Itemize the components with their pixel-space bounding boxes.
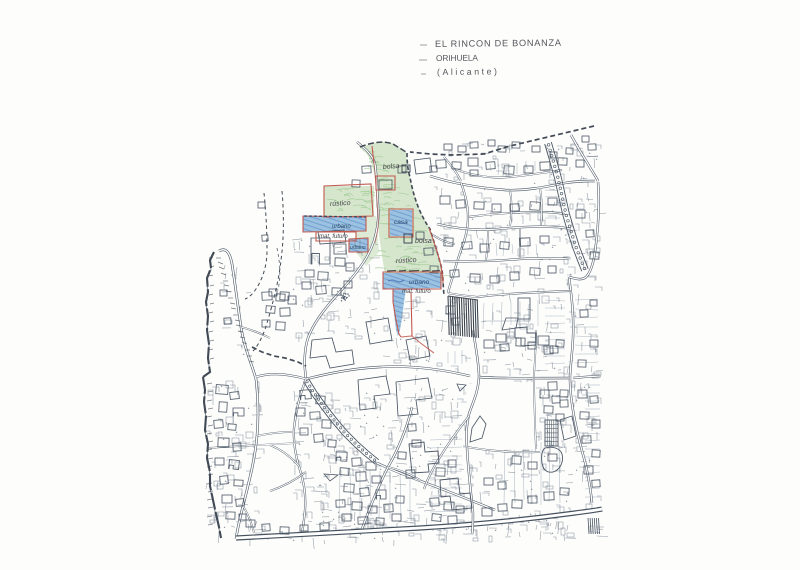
svg-text:urbano: urbano xyxy=(350,245,366,251)
svg-text:casa: casa xyxy=(394,219,408,226)
svg-text:mat. futuro: mat. futuro xyxy=(319,234,348,240)
svg-text:urbano: urbano xyxy=(409,279,430,286)
svg-text:bolsa: bolsa xyxy=(415,238,432,245)
svg-text:(Alicante): (Alicante) xyxy=(437,66,497,77)
svg-text:ORIHUELA: ORIHUELA xyxy=(436,53,479,63)
svg-text:rústico: rústico xyxy=(330,200,351,208)
svg-text:mat. futuro: mat. futuro xyxy=(402,289,431,295)
svg-text:rústico: rústico xyxy=(396,257,417,265)
svg-text:EL RINCON DE BONANZA: EL RINCON DE BONANZA xyxy=(435,38,562,49)
svg-text:bolsa: bolsa xyxy=(383,163,400,171)
svg-text:urbano: urbano xyxy=(332,224,351,230)
